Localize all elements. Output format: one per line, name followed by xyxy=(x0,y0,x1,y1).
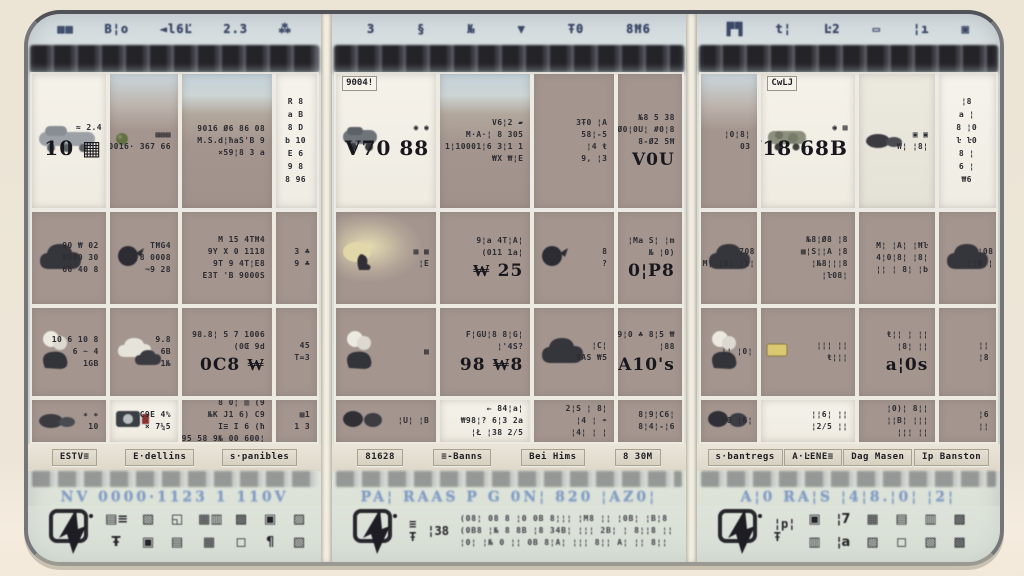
cell-line: №8¦Ø8 ¦8 xyxy=(806,235,848,245)
blue-caption: NV 0000·1123 1 110V xyxy=(28,487,321,506)
cell-big-value: 0¦P8 xyxy=(628,263,675,280)
cell-line: 708 xyxy=(739,247,755,257)
cell-line: ▦▦▦ xyxy=(155,130,171,140)
cell-line: 0016· 367 66 xyxy=(110,142,171,152)
footer-filmstrip xyxy=(701,471,996,487)
cell-big-value: VW18 68B xyxy=(761,138,847,158)
cell-line: C9E 4% xyxy=(140,410,171,420)
cell-line: ¦C¦ xyxy=(592,341,608,351)
footer-tabs: ESTV≡E·dellinss·panibles xyxy=(28,444,321,471)
cell-line: ▦1 xyxy=(300,410,310,420)
cell-line: 9.8 xyxy=(155,335,171,345)
topbar-glyph: 8Ħ6 xyxy=(626,23,651,35)
forecast-cell[interactable]: ¦Ma S¦ ¦m№ ¦0)0¦P8 xyxy=(618,212,681,304)
cell-text: F¦GU¦8 8¦G¦¦'4S?98 ₩8 xyxy=(460,330,525,374)
forecast-cell[interactable]: 9.86B1№ xyxy=(110,308,178,396)
cell-line: 9 ♣ xyxy=(294,259,310,269)
forecast-cell[interactable]: ← 84¦a¦₩98¦? 6¦3 2a¦Ł ¦38 2/5 xyxy=(440,400,530,442)
dock-side-glyph: ¦38 xyxy=(427,525,449,538)
cell-text: ¦6¦¦ xyxy=(979,410,991,432)
footer-tab-button[interactable]: ≡-Banns xyxy=(433,449,490,466)
footer-tab-button[interactable]: Bei Hims xyxy=(521,449,584,466)
dock-glyph-button[interactable]: ▦ xyxy=(198,536,220,549)
dock-glyph-button[interactable]: ▩ xyxy=(951,513,967,526)
dock-glyph-button[interactable]: ▤ xyxy=(169,536,185,549)
cell-text: 9.86B1№ xyxy=(168,335,173,369)
forecast-cell[interactable]: 3Ŧ0 ¦A58¦-5¦4 ŧ9, ¦3 xyxy=(534,74,614,208)
cell-line: 8AS ₩5 xyxy=(576,353,607,363)
cell-line: ¦88 xyxy=(659,342,675,352)
dock-glyph-button[interactable]: ◻ xyxy=(893,536,909,549)
dock-glyph-button[interactable]: ▤ xyxy=(893,513,909,526)
cell-line: 9¦a 4T¦A¦ xyxy=(476,236,523,246)
cursor-flag-icon[interactable] xyxy=(48,506,94,556)
dock-glyph-button[interactable]: ¦a xyxy=(835,536,851,549)
forecast-cell[interactable]: F¦GU¦8 8¦G¦¦'4S?98 ₩8 xyxy=(440,308,530,396)
cell-line: 8 D xyxy=(288,123,304,133)
dock-glyph-grid: ▣▥¦7¦a▦▨▤◻▥▧▩▩ xyxy=(806,511,967,552)
cell-text: ¦Ma S¦ ¦m№ ¦0)0¦P8 xyxy=(628,236,677,280)
dock-glyph-button[interactable]: ▨ xyxy=(291,513,307,526)
dock-glyph-button[interactable]: ▦ xyxy=(864,513,880,526)
panel-divider xyxy=(686,14,697,562)
cell-text: ▦▦▦0016· 367 66 xyxy=(132,130,173,152)
forecast-cell[interactable]: 45T=3 xyxy=(276,308,317,396)
cell-line: 58¦-5 xyxy=(581,130,607,140)
cell-line: 8 0¦ ▥ (9 xyxy=(218,400,265,408)
cell-text: 8? xyxy=(602,247,609,269)
cell-text: ¦¦ ¦0¦ xyxy=(753,347,755,357)
forecast-cell[interactable]: M¦ ¦A¦ ¦Ħŀ4¦0¦8¦ ¦8¦¦¦ ¦ 8¦ ¦b xyxy=(859,212,935,304)
forecast-panel: ▛▜t¦Ŀ2▭¦ı▣¦0¦8¦03CwLJ◉ ▦VW18 68B▣ ▣₩¦ ¦8… xyxy=(697,14,1000,562)
cell-text: 45T=3 xyxy=(294,341,312,363)
cell-text: ≈ 2.410 ▦ xyxy=(102,123,104,158)
cell-big-value: V70 88 xyxy=(345,138,429,158)
cell-text: 10 6 10 86 ~ 41GB xyxy=(84,335,101,369)
cell-line: ¦Ł ¦38 2/5 xyxy=(471,428,523,438)
cell-line: ¦¦6¦ ¦¦ xyxy=(811,410,848,420)
topbar-glyph: ▭ xyxy=(873,23,881,35)
cell-line: 9T 9 4T¦E8 xyxy=(213,259,265,269)
cell-line: ¦8¦ ¦¦ xyxy=(897,342,928,352)
cell-line: ¦E xyxy=(419,259,429,269)
forecast-cell[interactable]: ¦6¦¦ xyxy=(939,400,996,442)
dock-glyph-button[interactable]: ▧ xyxy=(922,536,938,549)
cell-text: 90 ₩ 020900 3066 40 8 xyxy=(86,241,101,275)
forecast-cell[interactable]: ¦U¦ ¦B xyxy=(336,400,436,442)
cell-line: 9016 Ø6 86 08 xyxy=(197,124,265,134)
cell-line: ∗ ∗ xyxy=(83,410,99,420)
cell-line: ¦0 ¦6¦ xyxy=(721,416,752,426)
dock-text-line: (0B8 ¦№ 8 8B ¦8 34B¦ ¦¦¦ 2B¦ ¦ 8¦¦8 ¦¦¦ xyxy=(460,526,672,536)
dock-side-glyph: ¦p¦ Ŧ xyxy=(774,518,796,544)
forecast-grid: 9004!◉ ◉V70 88V6¦2 ▰M·A·¦ 8 3051¦10001¦6… xyxy=(332,72,686,444)
cell-line: ŧ¦¦ ¦ ¦¦ xyxy=(887,330,929,340)
cell-line: E3T 'B 9000S xyxy=(203,271,266,281)
forecast-cell[interactable]: ▦ ▦¦E xyxy=(336,212,436,304)
topbar-glyph: B¦o xyxy=(104,23,129,35)
cell-line: ◉ ◉ xyxy=(414,123,430,133)
cell-line: ¦¦8 ¦ xyxy=(967,259,993,269)
dock-glyph-button[interactable]: ▣ xyxy=(140,536,156,549)
footer-tab-button[interactable]: ESTV≡ xyxy=(52,449,98,466)
cell-line: 10 6 10 8 xyxy=(52,335,99,345)
dock-glyph-button[interactable]: ¶ xyxy=(262,536,278,549)
forecast-cell[interactable]: ▣ ▣₩¦ ¦8¦ xyxy=(859,74,935,208)
cell-text: №8¦Ø8 ¦8▩¦S¦¦A ¦8¦№8¦¦¦8¦ŀ08¦ xyxy=(801,235,850,281)
forecast-cell[interactable]: ¦C¦8AS ₩5 xyxy=(534,308,614,396)
dock-side-glyph: ≡ Ŧ xyxy=(409,518,416,544)
footer-tab-button[interactable]: Ip Banston xyxy=(914,449,989,466)
board-card: ▩▦B¦o◄l6Ľ2.3⁂≈ 2.410 ▦▦▦▦0016· 367 66901… xyxy=(24,10,1004,566)
header-filmstrip xyxy=(699,45,998,72)
cell-line: 1№ xyxy=(161,359,171,369)
cell-line: №K J1 6) C9 xyxy=(208,410,265,420)
dock-glyph-button[interactable]: ▣ xyxy=(262,513,278,526)
cell-line: M·A·¦ 8 305 xyxy=(466,130,523,140)
gravel-icon xyxy=(37,409,77,433)
cell-text: C9E 4%× 7¼5 xyxy=(154,410,173,432)
forecast-cell[interactable]: 10 6 10 86 ~ 41GB xyxy=(32,308,106,396)
forecast-cell[interactable]: 9004!◉ ◉V70 88 xyxy=(336,74,436,208)
cell-line: ₩6 xyxy=(961,175,971,185)
dock-glyph-grid: ▤≡Ŧ▧▣◱▤▦▥▦▩◻▣¶▨▧ xyxy=(105,511,307,552)
topbar-glyph: ¦ı xyxy=(913,23,929,35)
dock-glyph-button[interactable]: Ŧ xyxy=(105,536,127,549)
cell-line: № ¦0) xyxy=(649,248,675,258)
dock-glyph-button[interactable]: ▨ xyxy=(864,536,880,549)
forecast-cell[interactable]: 2¦S ¦ 8¦¦4 ¦ ☂¦4¦ ¦ ¦ xyxy=(534,400,614,442)
cell-line: 8 0008 xyxy=(140,253,171,263)
topbar-glyph: 3 xyxy=(367,23,375,35)
cell-text: ¦¦¦ ¦¦ŧ¦¦¦ xyxy=(817,341,850,363)
forecast-cell[interactable]: №8 5 389Ø0¦0U¦ #0¦88-Ø2 5ĦV0U xyxy=(618,74,681,208)
panel-topbar: ▩▦B¦o◄l6Ľ2.3⁂ xyxy=(28,14,321,45)
cell-line: 0900 30 xyxy=(62,253,99,263)
cell-caption: CwLJ xyxy=(767,76,797,91)
topbar-glyph: ▼ xyxy=(518,23,526,35)
cell-line: ▩¦S¦¦A ¦8 xyxy=(801,247,848,257)
footer-tab-button[interactable]: Dag Masen xyxy=(843,449,912,466)
cell-big-value: V0U xyxy=(632,152,675,169)
forecast-cell[interactable]: 90 ₩ 020900 3066 40 8 xyxy=(32,212,106,304)
cell-line: ¦№8¦¦¦8 xyxy=(811,259,848,269)
cell-line: 9, ¦3 xyxy=(581,154,607,164)
cell-line: 6 ~ 4 xyxy=(73,347,99,357)
icon-dock: ≡ Ŧ¦38(08¦ 08 8 ¦0 0B 8¦¦¦ ¦M8 ¦¦ ¦0B¦ ¦… xyxy=(332,506,686,562)
topbar-glyph: ▣ xyxy=(962,23,970,35)
blue-caption: PA¦ RAAS P G 0N¦ 820 ¦AZ0¦ xyxy=(332,487,686,506)
cell-line: 8-Ø2 5Ħ xyxy=(638,137,675,147)
cell-line: ₩98¦? 6¦3 2a xyxy=(461,416,524,426)
cell-line: 03 xyxy=(740,142,750,152)
cell-line: 10 xyxy=(88,422,98,432)
forecast-cell[interactable]: ŧ¦¦ ¦ ¦¦¦8¦ ¦¦a¦0s xyxy=(859,308,935,396)
cell-text: ¦0)¦ 8¦¦¦¦B¦ ¦¦¦¦¦¦ ¦¦ xyxy=(887,404,931,438)
cell-line: ¦6 xyxy=(979,410,989,420)
forecast-cell[interactable]: 9¦0 ♣ 8¦5 ₩¦88A10's xyxy=(618,308,681,396)
topbar-glyph: ◄l6Ľ xyxy=(160,23,193,35)
cell-text: 9016 Ø6 86 08M.S.d¦ħaS'B 9×59¦8 3 a xyxy=(197,124,267,158)
dock-glyph-button[interactable]: ▩ xyxy=(233,513,249,526)
dock-glyph-button[interactable]: ▧ xyxy=(140,513,156,526)
cell-line: ¦¦ ¦0¦ xyxy=(721,347,752,357)
cell-big-value: A10's xyxy=(618,357,674,374)
cell-text: R 8a B8 Db 10E 69 88 96 xyxy=(285,97,308,185)
topbar-glyph: № xyxy=(467,23,475,35)
cell-line: 6 ¦ xyxy=(959,162,975,172)
cell-text: V6¦2 ▰M·A·¦ 8 3051¦10001¦6 3¦1 1₩X ₩¦E xyxy=(445,118,525,164)
dock-glyph-button[interactable]: ▣ xyxy=(806,513,822,526)
cell-text: ¦8a ¦8 ¦0ŀ ŀ08 ¦6 ¦₩6 xyxy=(956,97,979,185)
cell-line: 2¦S ¦ 8¦ xyxy=(566,404,608,414)
forecast-cell[interactable]: R 8a B8 Db 10E 69 88 96 xyxy=(276,74,317,208)
cursor-flag-icon[interactable] xyxy=(717,506,763,556)
cell-line: 45 xyxy=(300,341,310,351)
cell-line: ▦ ▦ xyxy=(414,247,430,257)
forecast-cell[interactable]: ≈ 2.410 ▦ xyxy=(32,74,106,208)
topbar-glyph: § xyxy=(417,23,425,35)
forecast-cell[interactable]: CwLJ◉ ▦VW18 68B xyxy=(761,74,854,208)
cell-line: V6¦2 ▰ xyxy=(492,118,523,128)
cell-line: ¦0¦8¦ xyxy=(724,130,750,140)
cell-text: ¦C¦8AS ₩5 xyxy=(588,341,609,363)
dock-text-line: ¦0¦ ¦№ 0 ¦¦ 0B 8¦A¦ ¦¦¦ 8¦¦ A¦ ¦¦ 8¦¦ xyxy=(460,538,672,548)
cell-text: 9¦0 ♣ 8¦5 ₩¦88A10's xyxy=(623,330,676,374)
cloud-dark-icon xyxy=(944,240,990,276)
topbar-glyph: ⁂ xyxy=(279,23,292,35)
cell-text: 8 0¦ ▥ (9№K J1 6) C9I≡ I 6 (ħ95 58 9№ 00… xyxy=(187,400,267,442)
cell-line: ŀ ŀ0 xyxy=(956,136,977,146)
cell-line: 1 3 xyxy=(294,422,310,432)
forecast-cell[interactable]: ¦0)¦ 8¦¦¦¦B¦ ¦¦¦¦¦¦ ¦¦ xyxy=(859,400,935,442)
cloud-dark-icon xyxy=(539,334,585,370)
bird-icon xyxy=(539,243,569,273)
header-filmstrip xyxy=(334,45,684,72)
cell-line: 8 xyxy=(602,247,607,257)
forecast-cell[interactable]: M 15 4TĦ49Y X 0 11189T 9 4T¦E8E3T 'B 900… xyxy=(182,212,272,304)
forecast-cell[interactable]: ¦0¦8¦03 xyxy=(701,74,758,208)
cell-text: 3Ŧ0 ¦A58¦-5¦4 ŧ9, ¦3 xyxy=(576,118,609,164)
forecast-cell[interactable]: ¦¦¦8 xyxy=(939,308,996,396)
cell-line: (011 1a¦ xyxy=(482,248,524,258)
cell-line: 95 58 9№ 00 600¦ xyxy=(182,434,265,442)
cell-line: R 8 xyxy=(288,97,304,107)
cell-line: ? xyxy=(602,259,607,269)
dock-glyph-button[interactable]: ▧ xyxy=(291,536,307,549)
cell-line: a B xyxy=(288,110,304,120)
dock-glyph-button[interactable]: ▥ xyxy=(922,513,938,526)
cell-big-value: 10 ▦ xyxy=(44,138,102,158)
cell-text: ∗ ∗10 xyxy=(83,410,101,432)
cell-line: ŧ¦¦¦ xyxy=(827,353,848,363)
forecast-cell[interactable]: ¦¦6¦ ¦¦¦2/5 ¦¦ xyxy=(761,400,854,442)
cell-text: ◉ ◉V70 88 xyxy=(388,123,431,158)
cell-text: 708M¦ ¦4¦ ¦ŀ¦ xyxy=(755,247,757,269)
cell-line: F¦GU¦8 8¦G¦ xyxy=(466,330,523,340)
cell-line: 98.8¦ 5 7 1006 xyxy=(192,330,265,340)
icon-dock: ▤≡Ŧ▧▣◱▤▦▥▦▩◻▣¶▨▧ xyxy=(28,506,321,562)
forecast-cell[interactable]: 9016 Ø6 86 08M.S.d¦ħaS'B 9×59¦8 3 a xyxy=(182,74,272,208)
cell-line: TĦG4 xyxy=(150,241,171,251)
footer-tab-button[interactable]: s·bantregs xyxy=(708,449,783,466)
cell-text: ▦ xyxy=(424,347,431,357)
topbar-glyph: t¦ xyxy=(775,23,791,35)
cell-line: 1¦10001¦6 3¦1 1 xyxy=(445,142,523,152)
cell-line: ¦¦B¦ ¦¦¦ xyxy=(887,416,929,426)
figure-icon xyxy=(341,239,381,277)
footer-tab-button[interactable]: s·panibles xyxy=(222,449,297,466)
cell-line: M.S.d¦ħaS'B 9 xyxy=(197,136,265,146)
cell-line: ¦¦ xyxy=(979,422,989,432)
cell-text: 8¦9¦C6¦8¦4¦-¦6 xyxy=(638,410,677,432)
forecast-cell[interactable]: №8¦Ø8 ¦8▩¦S¦¦A ¦8¦№8¦¦¦8¦ŀ08¦ xyxy=(761,212,854,304)
panel-divider xyxy=(321,14,332,562)
forecast-cell[interactable]: 708M¦ ¦4¦ ¦ŀ¦ xyxy=(701,212,758,304)
cell-line: ×59¦8 3 a xyxy=(218,148,265,158)
cell-line: T=3 xyxy=(294,353,310,363)
cell-text: ← 84¦a¦₩98¦? 6¦3 2a¦Ł ¦38 2/5 xyxy=(461,404,526,438)
dock-glyph-button[interactable]: ◱ xyxy=(169,513,185,526)
topbar-glyph: ▩▦ xyxy=(57,23,73,35)
cell-line: ¦¦ ¦ 8¦ ¦b xyxy=(876,265,928,275)
footer-tab-button[interactable]: A·ĿENE≡ xyxy=(784,449,841,466)
cursor-flag-icon[interactable] xyxy=(352,506,398,556)
header-filmstrip xyxy=(30,45,319,72)
cell-text: ▦11 3 xyxy=(294,410,312,432)
cloud-smoke-icon xyxy=(341,330,385,374)
dock-glyph-button[interactable]: ▦▥ xyxy=(198,513,220,526)
forecast-grid: ≈ 2.410 ▦▦▦▦0016· 367 669016 Ø6 86 08M.S… xyxy=(28,72,321,444)
cell-big-value: ₩ 25 xyxy=(473,263,524,280)
cell-line: ¦U¦ ¦B xyxy=(398,416,429,426)
cell-line: ¦8 xyxy=(961,97,971,107)
forecast-grid: ¦0¦8¦03CwLJ◉ ▦VW18 68B▣ ▣₩¦ ¦8¦¦8a ¦8 ¦0… xyxy=(697,72,1000,444)
cell-big-value: 0C8 ₩ xyxy=(200,357,265,374)
dock-glyph-button[interactable]: ▩ xyxy=(951,536,967,549)
forecast-cell[interactable]: 3 ♣9 ♣ xyxy=(276,212,317,304)
cell-line: a ¦ xyxy=(959,110,975,120)
cell-line: 90 ₩ 02 xyxy=(62,241,99,251)
forecast-cell[interactable]: ¦08¦¦8 ¦ xyxy=(939,212,996,304)
forecast-cell[interactable]: ¦0 ¦6¦ xyxy=(701,400,758,442)
cell-big-value: a¦0s xyxy=(886,357,929,374)
forecast-cell[interactable]: 9¦a 4T¦A¦(011 1a¦₩ 25 xyxy=(440,212,530,304)
cell-text: 98.8¦ 5 7 1006(0Œ 9d0C8 ₩ xyxy=(192,330,267,374)
cell-text: ¦¦6¦ ¦¦¦2/5 ¦¦ xyxy=(811,410,850,432)
cell-line: ¦4 ¦ ☂ xyxy=(576,416,607,426)
cell-line: 8¦9¦C6¦ xyxy=(638,410,675,420)
forecast-cell[interactable]: ▦▦▦0016· 367 66 xyxy=(110,74,178,208)
dock-glyph-button[interactable]: ▥ xyxy=(806,536,822,549)
cell-line: 3Ŧ0 ¦A xyxy=(576,118,607,128)
panel-topbar: ▛▜t¦Ŀ2▭¦ı▣ xyxy=(697,14,1000,45)
cloud-dark-icon xyxy=(706,240,752,276)
cell-text: ¦08¦¦8 ¦ xyxy=(993,247,995,269)
topbar-glyph: Ŧ0 xyxy=(568,23,584,35)
dock-text-block: (08¦ 08 8 ¦0 0B 8¦¦¦ ¦M8 ¦¦ ¦0B¦ ¦B¦8(0B… xyxy=(460,514,672,549)
topbar-glyph: ▛▜ xyxy=(727,23,743,35)
cell-line: ¦¦¦ ¦¦ xyxy=(897,428,928,438)
forecast-cell[interactable]: ▦ xyxy=(336,308,436,396)
cell-line: ▣ ▣ xyxy=(913,130,929,140)
cell-text: ŧ¦¦ ¦ ¦¦¦8¦ ¦¦a¦0s xyxy=(886,330,931,374)
cell-text: ¦0¦8¦03 xyxy=(724,130,752,152)
footer-tabs: 81628≡-BannsBei Hims8 30M xyxy=(332,444,686,471)
dock-glyph-button[interactable]: ◻ xyxy=(233,536,249,549)
cell-line: I≡ I 6 (ħ xyxy=(218,422,265,432)
forecast-cell[interactable]: 8 0¦ ▥ (9№K J1 6) C9I≡ I 6 (ħ95 58 9№ 00… xyxy=(182,400,272,442)
forecast-cell[interactable]: ∗ ∗10 xyxy=(32,400,106,442)
footer-filmstrip xyxy=(336,471,682,487)
cell-text: №8 5 389Ø0¦0U¦ #0¦88-Ø2 5ĦV0U xyxy=(623,113,676,169)
cell-line: 9 8 xyxy=(288,162,304,172)
cell-line: 9Y X 0 1118 xyxy=(208,247,265,257)
cell-line: ¦8 xyxy=(979,353,989,363)
forecast-cell[interactable]: 8? xyxy=(534,212,614,304)
forecast-cell[interactable]: ▦11 3 xyxy=(276,400,317,442)
dock-glyph-button[interactable]: ▤≡ xyxy=(105,513,127,526)
cell-text: M 15 4TĦ49Y X 0 11189T 9 4T¦E8E3T 'B 900… xyxy=(203,235,268,281)
cell-line: ¦4¦ ¦ ¦ xyxy=(571,428,608,438)
cell-line: ¦¦¦ ¦¦ xyxy=(817,341,848,351)
forecast-cell[interactable]: C9E 4%× 7¼5 xyxy=(110,400,178,442)
forecast-cell[interactable]: V6¦2 ▰M·A·¦ 8 3051¦10001¦6 3¦1 1₩X ₩¦E xyxy=(440,74,530,208)
forecast-cell[interactable]: TĦG48 0008¬9 28 xyxy=(110,212,178,304)
cell-line: ¦4 ŧ xyxy=(587,142,608,152)
blue-caption: A¦0 RA¦S ¦4¦8.¦0¦ ¦2¦ xyxy=(697,487,1000,506)
cell-line: × 7¼5 xyxy=(145,422,171,432)
cell-text: ¦0 ¦6¦ xyxy=(753,416,755,426)
topbar-glyph: 2.3 xyxy=(223,23,248,35)
cell-line: 3 ♣ xyxy=(294,247,310,257)
cell-text: ▦ ▦¦E xyxy=(414,247,432,269)
cell-text: ▣ ▣₩¦ ¦8¦ xyxy=(907,130,930,152)
cell-line: ¦Ma S¦ ¦m xyxy=(628,236,675,246)
cell-line: (0Œ 9d xyxy=(234,342,265,352)
footer-tab-button[interactable]: E·dellins xyxy=(125,449,194,466)
forecast-cell[interactable]: 98.8¦ 5 7 1006(0Œ 9d0C8 ₩ xyxy=(182,308,272,396)
tag-yellow-icon xyxy=(766,342,788,361)
topbar-glyph: Ŀ2 xyxy=(824,23,840,35)
cell-line: ¦2/5 ¦¦ xyxy=(811,422,848,432)
footer-tab-button[interactable]: 8 30M xyxy=(615,449,661,466)
forecast-cell[interactable]: ¦¦¦ ¦¦ŧ¦¦¦ xyxy=(761,308,854,396)
cell-line: №8 5 38 xyxy=(638,113,675,123)
cell-line: ← 84¦a¦ xyxy=(487,404,524,414)
cell-line: ¦08 xyxy=(978,247,994,257)
panel-container: ▩▦B¦o◄l6Ľ2.3⁂≈ 2.410 ▦▦▦▦0016· 367 66901… xyxy=(28,14,1000,562)
cell-line: 8 ¦ xyxy=(959,149,975,159)
cell-line: ▦ xyxy=(424,347,429,357)
cell-line: 8 ¦0 xyxy=(956,123,977,133)
footer-tab-button[interactable]: 81628 xyxy=(357,449,403,466)
cell-line: 9Ø0¦0U¦ #0¦8 xyxy=(618,125,674,135)
forecast-panel: ▩▦B¦o◄l6Ľ2.3⁂≈ 2.410 ▦▦▦▦0016· 367 66901… xyxy=(28,14,321,562)
forecast-cell[interactable]: 8¦9¦C6¦8¦4¦-¦6 xyxy=(618,400,681,442)
cell-line: 66 40 8 xyxy=(62,265,99,275)
dock-glyph-button[interactable]: ¦7 xyxy=(835,513,851,526)
cell-line: 1GB xyxy=(83,359,99,369)
cell-line: ¦'4S? xyxy=(497,342,523,352)
cell-line: E 6 xyxy=(288,149,304,159)
cell-line: M 15 4TĦ4 xyxy=(218,235,265,245)
forecast-cell[interactable]: ¦8a ¦8 ¦0ŀ ŀ08 ¦6 ¦₩6 xyxy=(939,74,996,208)
cell-line: 6B xyxy=(161,347,171,357)
cell-line: M¦ ¦A¦ ¦Ħŀ xyxy=(876,241,928,251)
cell-line: ¬9 28 xyxy=(145,265,171,275)
forecast-cell[interactable]: ¦¦ ¦0¦ xyxy=(701,308,758,396)
